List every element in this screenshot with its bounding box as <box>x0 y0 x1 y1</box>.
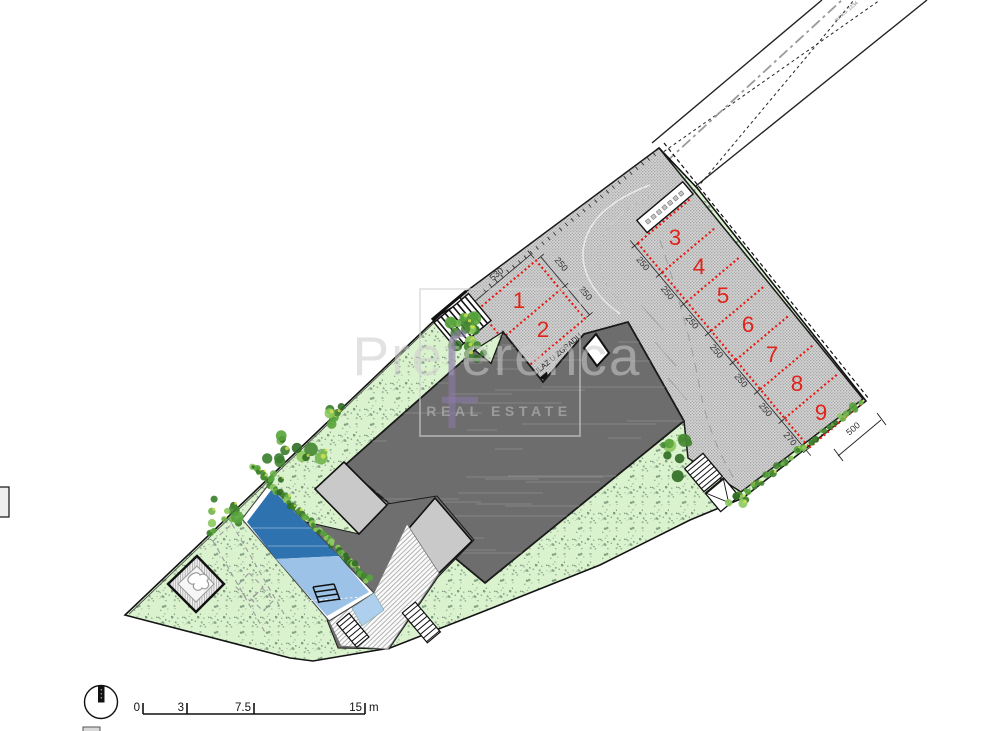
svg-text:4: 4 <box>693 254 706 279</box>
svg-text:put k.o. 1234: put k.o. 1234 <box>833 0 859 23</box>
svg-text:6: 6 <box>742 312 755 337</box>
svg-text:1: 1 <box>513 288 526 313</box>
svg-text:5: 5 <box>717 283 730 308</box>
svg-text:9: 9 <box>815 400 828 425</box>
svg-text:REAL ESTATE: REAL ESTATE <box>426 403 572 419</box>
svg-text:m: m <box>369 702 379 714</box>
svg-text:7.5: 7.5 <box>235 702 251 714</box>
svg-text:3: 3 <box>669 225 682 250</box>
svg-text:3: 3 <box>178 702 184 714</box>
svg-text:8: 8 <box>791 371 804 396</box>
svg-text:Preferenca: Preferenca <box>352 325 641 387</box>
svg-text:0: 0 <box>134 702 140 714</box>
svg-text:15: 15 <box>349 702 362 714</box>
svg-text:500: 500 <box>844 420 862 437</box>
svg-text:7: 7 <box>766 342 779 367</box>
